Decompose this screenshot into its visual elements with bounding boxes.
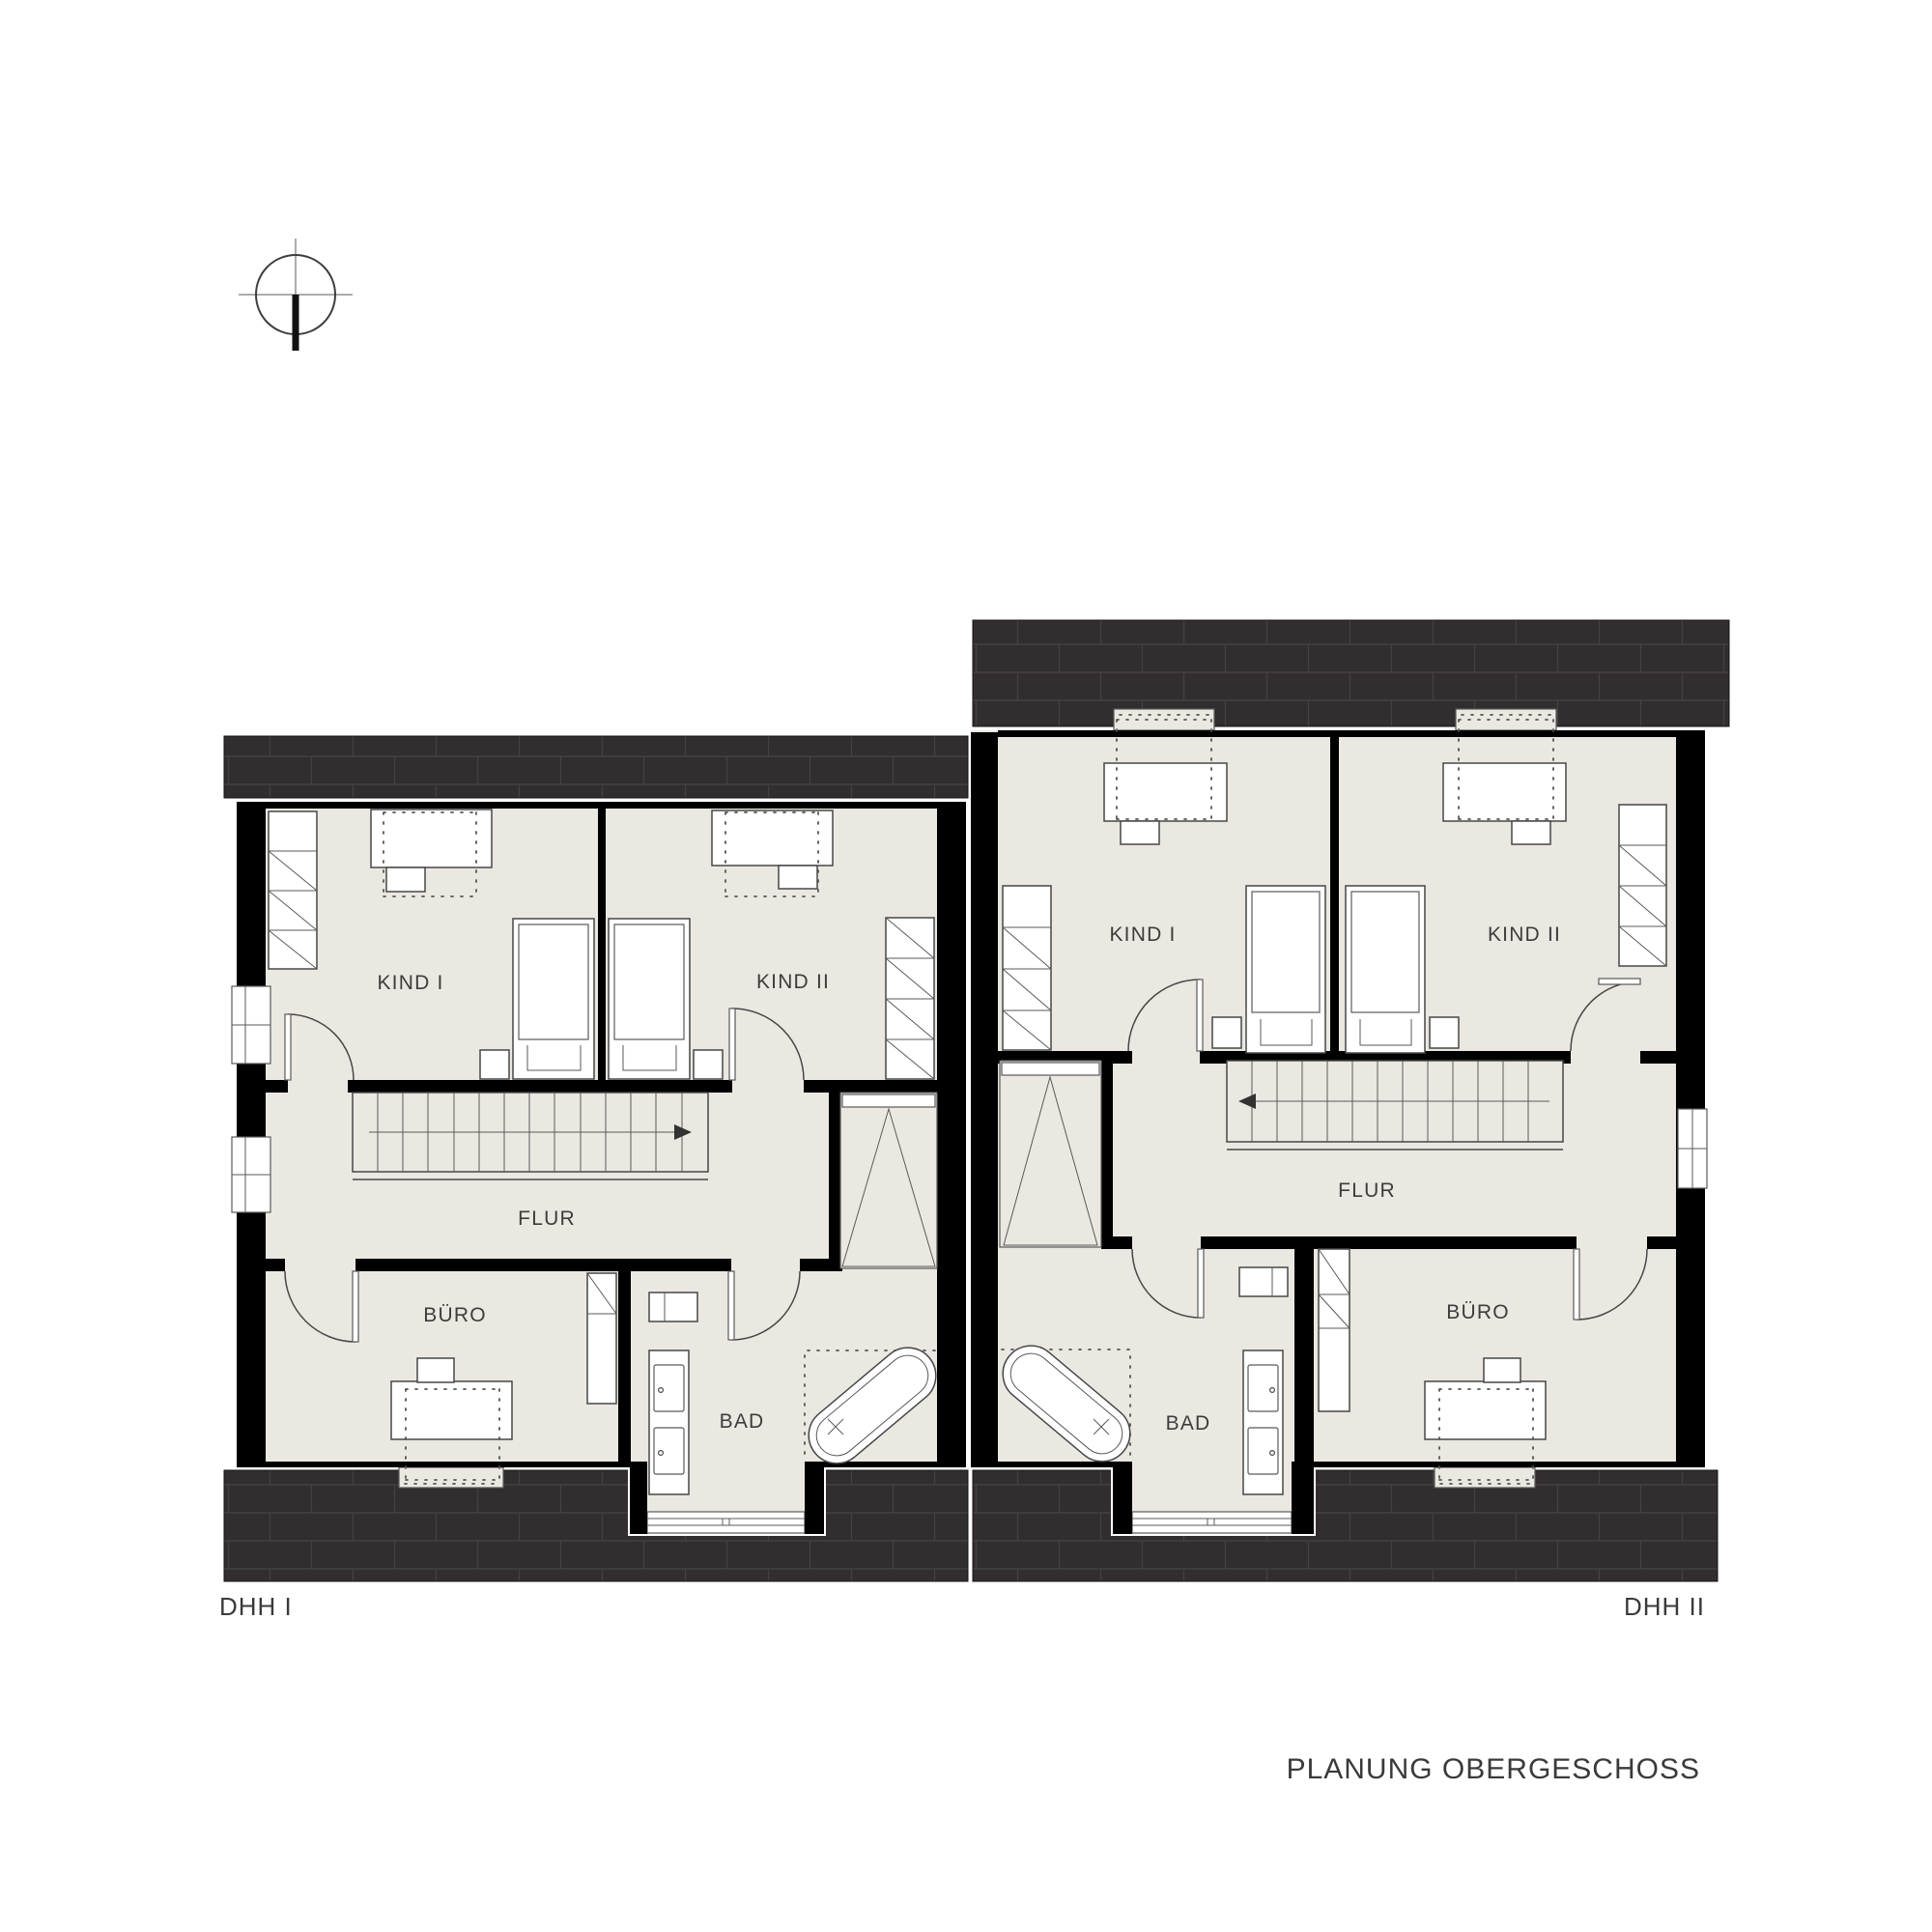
unit-dhh2: KIND I KIND II FLUR BÜRO BAD: [971, 620, 1729, 1581]
unit-label-dhh2: DHH II: [1624, 1592, 1705, 1621]
chair: [1121, 821, 1159, 844]
sink-counter: [1243, 1350, 1283, 1494]
chair: [1484, 1358, 1520, 1382]
window-bath-dhh1: [647, 1512, 805, 1533]
north-orientation-icon: [239, 239, 353, 351]
shelf: [649, 1293, 697, 1321]
room-label-buero-dhh1: BÜRO: [423, 1304, 486, 1326]
sink-counter: [649, 1350, 689, 1494]
wall-kind1-kind2-dhh1: [598, 809, 606, 1080]
plan-canvas: KIND I KIND II FLUR BÜRO BAD: [0, 0, 1932, 1932]
window-flur-dhh1: [232, 1137, 270, 1212]
cabinet: [587, 1273, 616, 1404]
room-label-kind2-dhh1: KIND II: [756, 971, 830, 993]
room-label-bad-dhh1: BAD: [720, 1410, 765, 1433]
dormer-notch-buero-dhh1: [399, 1467, 503, 1488]
sink: [654, 1428, 684, 1474]
shelf: [1239, 1267, 1288, 1296]
chair: [779, 866, 817, 889]
nightstand: [1430, 1017, 1459, 1048]
wall-kind1-kind2-dhh2: [1330, 737, 1339, 1051]
chair: [417, 1358, 454, 1382]
wall-buero-bad-dhh1: [618, 1271, 631, 1462]
staircase-dhh1: [353, 1093, 708, 1179]
roof-slope-area-dhh1: [840, 1093, 937, 1268]
room-label-flur-dhh1: FLUR: [518, 1207, 576, 1230]
north-south-needle: [293, 295, 299, 351]
roof-top-dhh2: [973, 620, 1729, 726]
wardrobe: [1003, 886, 1051, 1050]
unit-dhh1: KIND I KIND II FLUR BÜRO BAD: [224, 736, 968, 1581]
chair: [386, 867, 425, 892]
bath-bay-dhh2: [1111, 1462, 1316, 1536]
window-bath-dhh2: [1132, 1512, 1292, 1533]
nightstand: [480, 1050, 509, 1079]
bed: [1346, 886, 1425, 1053]
window-flur-dhh2: [1678, 1109, 1707, 1188]
dormer-notch-buero-dhh2: [1435, 1467, 1535, 1488]
sheet-title: PLANUNG OBERGESCHOSS: [1287, 1753, 1700, 1785]
staircase-dhh2: [1227, 1061, 1563, 1150]
wardrobe: [886, 918, 934, 1079]
room-label-bad-dhh2: BAD: [1166, 1412, 1211, 1435]
sink: [654, 1365, 684, 1411]
room-label-kind1-dhh2: KIND I: [1109, 923, 1176, 946]
room-label-flur-dhh2: FLUR: [1338, 1179, 1396, 1202]
room-label-buero-dhh2: BÜRO: [1446, 1301, 1509, 1323]
bed: [1246, 886, 1325, 1053]
nightstand: [694, 1050, 723, 1079]
wardrobe: [269, 811, 317, 969]
nightstand: [1212, 1017, 1241, 1048]
wardrobe: [1619, 805, 1666, 966]
room-label-kind2-dhh2: KIND II: [1488, 923, 1561, 946]
unit-label-dhh1: DHH I: [219, 1592, 293, 1621]
roof-top-dhh1: [224, 736, 968, 798]
roof-bottom-dhh2: [973, 1470, 1718, 1581]
cabinet: [1319, 1249, 1350, 1411]
bed: [513, 919, 594, 1079]
window-kind1-dhh1: [232, 986, 270, 1064]
roof-slope-area-dhh2: [1000, 1061, 1101, 1247]
wall-buero-bad-dhh2: [1294, 1249, 1314, 1462]
bed: [609, 919, 690, 1079]
floor-plan-sheet: KIND I KIND II FLUR BÜRO BAD: [0, 0, 1932, 1932]
chair: [1512, 821, 1550, 844]
room-label-kind1-dhh1: KIND I: [377, 972, 443, 994]
roof-bottom-dhh1: [224, 1470, 968, 1581]
